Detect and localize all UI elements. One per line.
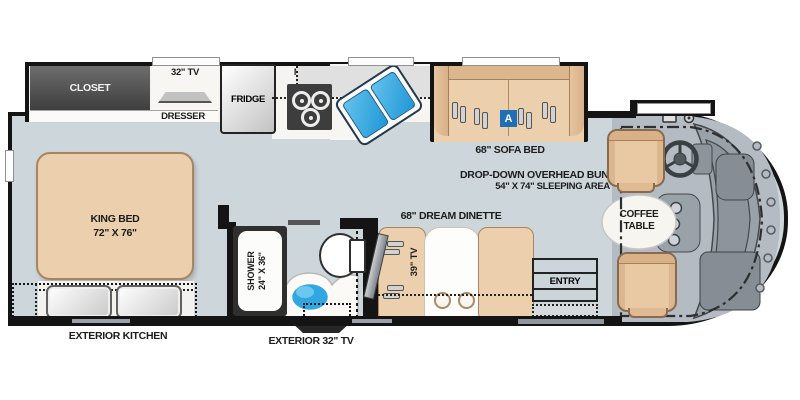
seat-back: [619, 254, 675, 264]
pillow: [116, 285, 182, 319]
wall-segment: [288, 220, 320, 225]
seatbelt-icon: [452, 102, 466, 122]
pillow: [46, 285, 112, 319]
rv-floorplan: CLOSET 32" TV DRESSER FRIDGE MICRO A 68"…: [0, 0, 800, 400]
seatbelt-icon: [542, 102, 556, 122]
entry-door-sill: [518, 319, 604, 324]
dresser: DRESSER: [30, 110, 218, 123]
passenger-seat: [617, 252, 677, 312]
tv-39-label: 39" TV: [409, 233, 423, 291]
dinette-table: [424, 227, 480, 322]
coffee-table-label: COFFEE TABLE: [608, 209, 670, 233]
toilet-tank: [349, 239, 366, 273]
king-bed-label-line1: KING BED: [91, 213, 140, 227]
camera-dot: [688, 117, 691, 120]
entry-steps: ENTRY: [532, 258, 598, 302]
sofa-badge: A: [500, 110, 517, 127]
sofa-bed-label: 68" SOFA BED: [450, 145, 570, 157]
storage-bay-door: [72, 319, 130, 323]
fridge: FRIDGE: [220, 64, 276, 134]
coffee-label-line2: TABLE: [608, 221, 670, 233]
seatbelt-icon: [474, 108, 488, 128]
seat-back: [609, 131, 663, 141]
sofa-seam: [508, 79, 509, 136]
sofa-armrest: [434, 66, 449, 136]
cooktop: [287, 84, 332, 130]
storage-bay-door: [352, 319, 392, 323]
top-wall-segment: [586, 111, 636, 118]
sofa-armrest: [569, 66, 584, 136]
seatbelt-icon: [384, 285, 404, 299]
shower-label-line1: SHOWER: [246, 228, 257, 314]
rear-window: [5, 150, 14, 182]
shower-label-line2: 24" X 36": [257, 228, 268, 314]
bunk-label-line2: 54" X 74" SLEEPING AREA: [460, 182, 610, 193]
burner-icon: [311, 91, 330, 110]
window: [348, 57, 414, 66]
dash-lower-panel: [700, 252, 760, 310]
dinette-bench-right: [478, 227, 534, 322]
passenger-seat-base: [628, 308, 668, 318]
entry-step: [534, 260, 596, 274]
burner-icon: [301, 108, 320, 127]
driver-seat: [607, 129, 665, 187]
closet: CLOSET: [30, 66, 150, 110]
shower-label: SHOWER 24" X 36": [246, 228, 274, 314]
dash-upper-panel: [716, 154, 754, 200]
bunk-label-line1: DROP-DOWN OVERHEAD BUNK: [460, 170, 610, 182]
wheel-hub: [674, 153, 686, 165]
window: [152, 57, 220, 66]
exterior-tv-label: EXTERIOR 32" TV: [248, 336, 374, 348]
exterior-kitchen-label: EXTERIOR KITCHEN: [48, 331, 188, 343]
king-bed: KING BED 72" X 76": [36, 152, 194, 280]
king-bed-label-line2: 72" X 76": [93, 227, 136, 241]
bedroom-tv: 32" TV: [152, 66, 218, 112]
dinette-slideout-line: [378, 294, 532, 296]
coffee-label-line1: COFFEE: [608, 209, 670, 221]
bed-slideout-line: [35, 284, 37, 319]
window: [462, 57, 560, 66]
driver-seat-base: [617, 183, 655, 193]
tv-icon: [158, 92, 212, 103]
sink-highlight: [296, 286, 314, 298]
tv-32-label: 32" TV: [152, 68, 218, 79]
sofa-back: [434, 66, 584, 80]
seatbelt-icon: [384, 241, 404, 255]
cab-window: [637, 103, 711, 114]
sofa-bed: A: [430, 62, 588, 142]
seatbelt-icon: [518, 108, 532, 128]
closet-label: CLOSET: [70, 82, 111, 94]
entry-label: ENTRY: [534, 274, 596, 290]
dinette-label: 68" DREAM DINETTE: [390, 211, 512, 223]
